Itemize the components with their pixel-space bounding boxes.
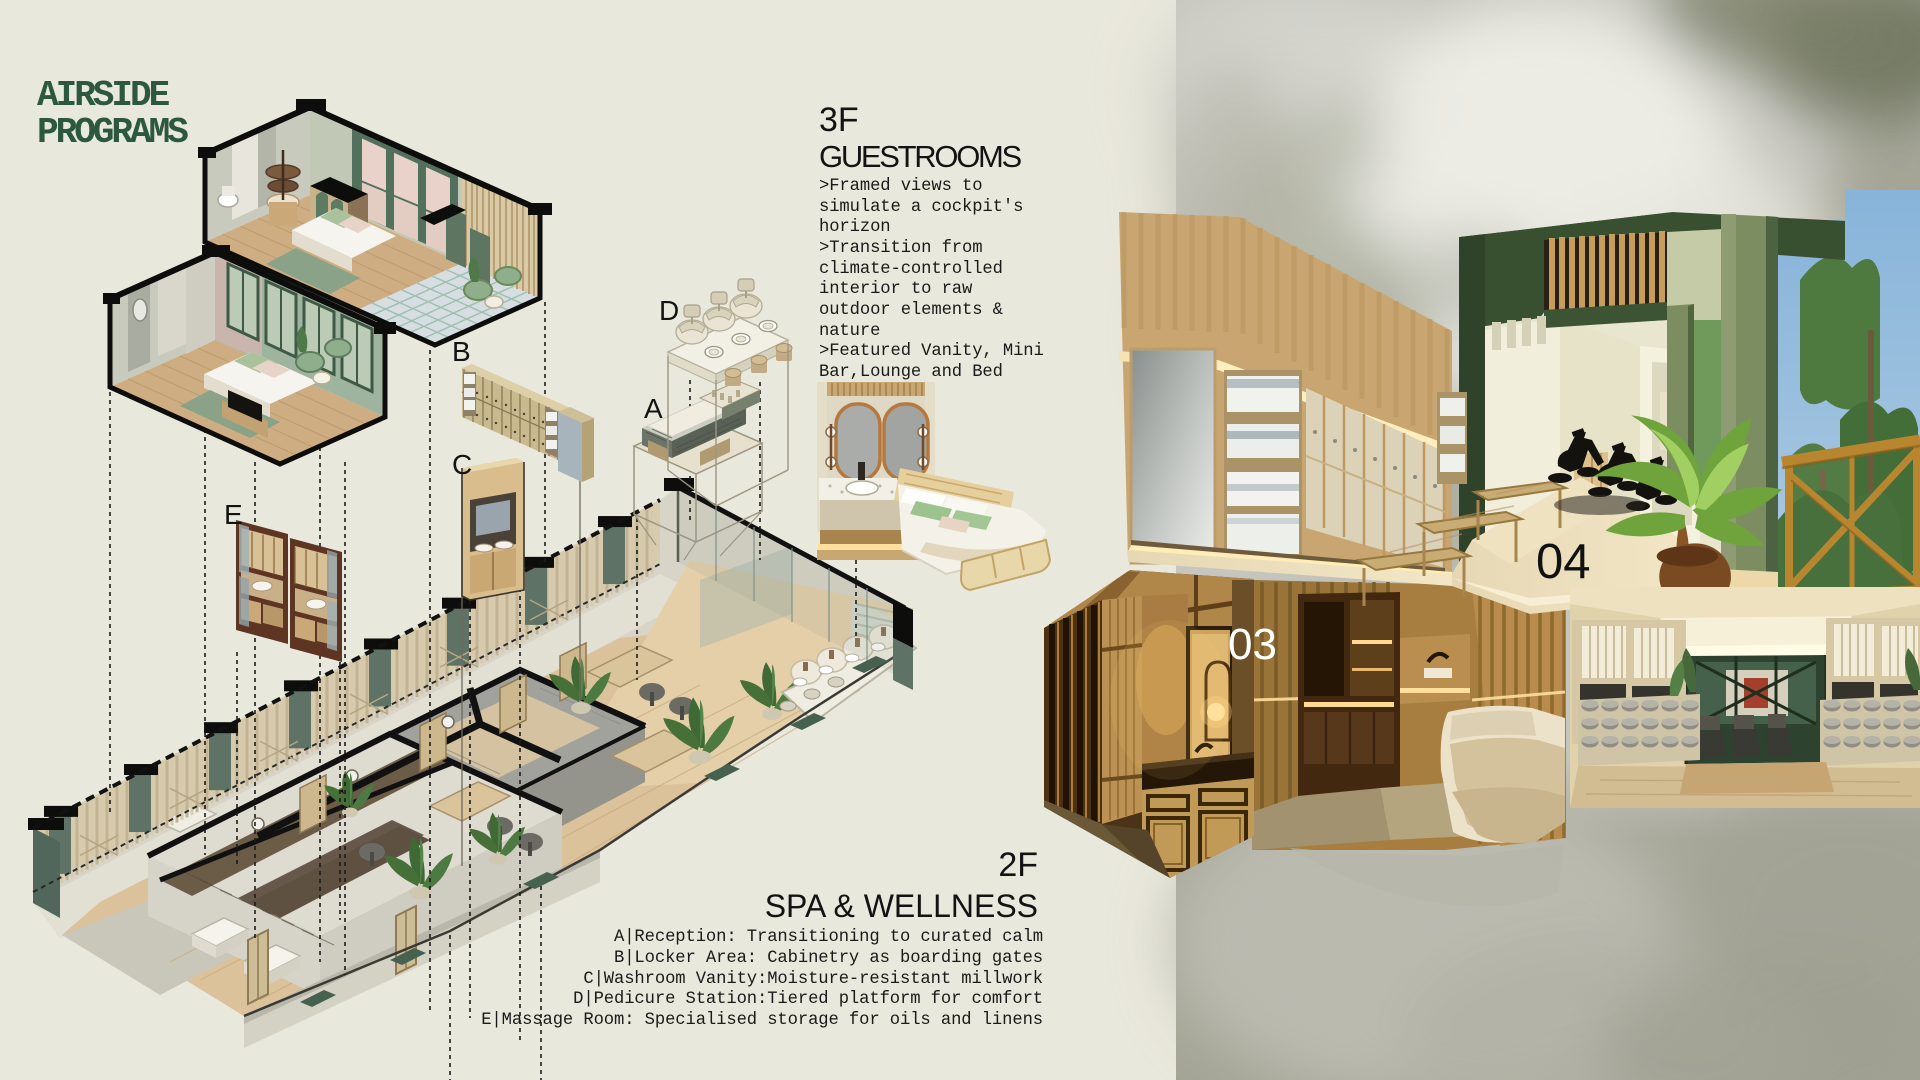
svg-text:B|Locker Area: Cabinetry as bo: B|Locker Area: Cabinetry as boarding gat… <box>614 949 1043 968</box>
svg-text:A: A <box>644 393 663 424</box>
svg-text:03: 03 <box>1228 620 1277 669</box>
svg-text:>Framed views to: >Framed views to <box>819 177 982 196</box>
svg-text:AIRSIDE: AIRSIDE <box>37 75 170 116</box>
svg-text:D|Pedicure Station:Tiered plat: D|Pedicure Station:Tiered platform for c… <box>573 990 1043 1009</box>
svg-text:simulate a cockpit's: simulate a cockpit's <box>819 198 1023 217</box>
svg-text:SPA & WELLNESS: SPA & WELLNESS <box>765 888 1038 924</box>
svg-text:Bar,Lounge and Bed: Bar,Lounge and Bed <box>819 363 1003 382</box>
svg-text:E|Massage Room: Specialised st: E|Massage Room: Specialised storage for … <box>481 1011 1043 1030</box>
svg-text:3F: 3F <box>819 101 859 139</box>
svg-text:B: B <box>452 336 471 367</box>
svg-text:horizon: horizon <box>819 218 891 237</box>
svg-text:outdoor elements &: outdoor elements & <box>819 301 1003 320</box>
svg-text:>Transition from: >Transition from <box>819 239 982 258</box>
svg-text:nature: nature <box>819 322 880 341</box>
svg-text:C: C <box>452 449 472 480</box>
svg-text:climate-controlled: climate-controlled <box>819 260 1003 279</box>
svg-text:E: E <box>224 499 243 530</box>
svg-text:04: 04 <box>1536 535 1591 589</box>
svg-text:A|Reception: Transitioning to: A|Reception: Transitioning to curated ca… <box>614 928 1043 947</box>
svg-text:interior to raw: interior to raw <box>819 280 973 299</box>
svg-text:C|Washroom Vanity:Moisture-res: C|Washroom Vanity:Moisture-resistant mil… <box>583 970 1043 989</box>
svg-text:D: D <box>659 295 679 326</box>
svg-text:2F: 2F <box>998 846 1038 884</box>
svg-text:PROGRAMS: PROGRAMS <box>37 112 188 153</box>
svg-text:GUESTROOMS: GUESTROOMS <box>819 139 1022 174</box>
svg-text:>Featured Vanity, Mini: >Featured Vanity, Mini <box>819 342 1044 361</box>
